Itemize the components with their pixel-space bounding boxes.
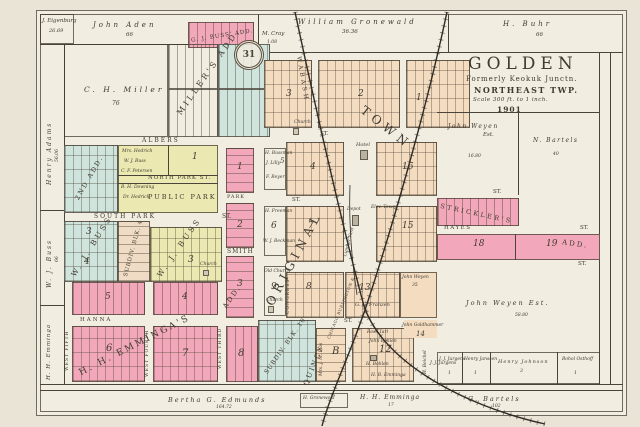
- map-title: GOLDEN: [468, 56, 578, 73]
- town-block6-number: 6: [271, 222, 277, 231]
- emminga-block8-number: 8: [238, 349, 244, 359]
- janssen-parcel-acres: 1: [474, 372, 477, 377]
- g-bartels-acres: 102: [492, 405, 501, 410]
- jurgens-parcel-acres: 1: [448, 372, 451, 377]
- park-street-label: PARK: [227, 195, 245, 200]
- weyen-lower-acres: 58.80: [515, 314, 528, 319]
- adams-label: Henry Adams: [47, 122, 53, 185]
- mcray-acres: 1.08: [267, 41, 277, 46]
- franzen-label: G. G. Franzen: [355, 303, 390, 308]
- hotel-label: Hotel: [356, 143, 370, 148]
- pink-block2-number: 2: [237, 221, 243, 230]
- ross-tarl-label: Ross Tarl: [367, 331, 388, 336]
- hayes-street-label: HAYES: [444, 226, 471, 232]
- stricklers-south-st: ST.: [578, 262, 586, 268]
- north-park-street-label: NORTH PARK ST.: [148, 176, 211, 182]
- west-fifth-street-label: WEST FIFTH: [66, 331, 71, 371]
- town-block14-number: 14: [416, 331, 425, 338]
- dr-hedrick-owner: Dr. Hedrick: [123, 196, 149, 201]
- church-label: Church: [294, 121, 311, 126]
- town-block7-number: 7: [308, 222, 314, 231]
- weyen35-acres: 35: [412, 284, 418, 289]
- beichel-label: H. Beichel: [424, 350, 429, 374]
- weyen-upper-label: John Weyen: [448, 124, 499, 130]
- town-street-st-3: ST.: [344, 319, 352, 325]
- buhr-label: H. Buhr: [503, 21, 552, 28]
- map-title-township: NORTHEAST TWP.: [474, 86, 579, 94]
- town-block1-number: 1: [416, 94, 422, 103]
- town-street-st-2: ST.: [292, 198, 300, 204]
- church2-label: Church: [266, 299, 283, 304]
- downing-owner: B. H. Downing: [121, 186, 154, 191]
- yellow-block3-number: 3: [188, 256, 194, 265]
- albers-street-label: ALBERS: [142, 138, 180, 144]
- hanna-street-label: HANNA: [80, 318, 112, 324]
- gronewold-label: H. Gronewold: [303, 397, 335, 402]
- buhr-acres: 66: [536, 33, 543, 39]
- town-block8-number: 8: [306, 283, 312, 292]
- section-stamp-number: 31: [243, 50, 256, 60]
- beyer-owner: F. Beyer: [266, 176, 285, 181]
- hh-emminga-strip-acres: 17: [388, 404, 394, 409]
- janssen-parcel-label: Henry Janssen: [464, 358, 497, 363]
- mcray-label: M. Cray: [262, 32, 284, 38]
- n-bartels-acres: 40: [553, 153, 559, 158]
- south-park-st-suffix: ST.: [222, 214, 231, 220]
- stricklers-block18-number: 18: [473, 240, 484, 249]
- pink-block1-number: 1: [237, 163, 243, 172]
- ch-miller-label: C. H. Miller: [84, 86, 164, 94]
- jurgens-parcel-label: J. J. Jurgens: [439, 358, 465, 363]
- public-park-label: PUBLIC PARK: [148, 194, 217, 201]
- h-bohlen-label: H. Bohlen: [366, 363, 389, 368]
- lilly-owner: J. Lilly: [266, 162, 280, 167]
- map-title-formerly: Formerly Keokuk Junctn.: [466, 76, 577, 83]
- bussman-owner: H. Bussman: [265, 152, 292, 157]
- smith-street-label: SMITH: [227, 249, 254, 255]
- johnson-parcel-acres: 3: [520, 370, 523, 375]
- gronewald-label: William Gronewald: [298, 19, 417, 26]
- town-block3-number: 3: [286, 90, 292, 99]
- eigenburg-acres: 26.69: [49, 29, 63, 34]
- aden-label: John Aden: [93, 22, 156, 29]
- stricklers-st-label: ST.: [493, 190, 501, 196]
- eigenburg-label: J. Eigenburg: [42, 19, 77, 25]
- n-bartels-label: N. Bartels: [533, 138, 579, 144]
- elev-tower-label: Elev. Tower: [371, 206, 397, 211]
- gronewald-acres: 36.36: [342, 30, 358, 36]
- aden-acres: 66: [126, 33, 133, 39]
- weyen-upper-acres: 16.80: [468, 155, 481, 160]
- hayes-st-suffix: ST.: [580, 226, 588, 232]
- town-block16-number: 16: [402, 163, 413, 172]
- bohlen-label: John Bohlen: [369, 340, 397, 345]
- yellow-church-label: Church: [200, 263, 217, 268]
- plat-map-golden: 31 GOLDEN Formerly Keokuk Junctn. NORTHE…: [0, 0, 640, 427]
- yellow-block1-number: 1: [192, 153, 198, 162]
- congress-street-label: CONGRESS: [287, 279, 292, 314]
- section-stamp: 31: [234, 40, 264, 70]
- map-title-scale: Scale 300 ft. to 1 inch.: [473, 98, 548, 104]
- margin-wj-buss-acres: 66: [56, 256, 61, 262]
- hb-emminga-label: H. B. Emminga: [371, 374, 406, 379]
- map-title-year: 1901: [497, 106, 522, 114]
- johnson-parcel-label: Henry Johnson: [498, 360, 549, 365]
- hh-emminga-strip-label: H. H. Emminga: [360, 395, 420, 401]
- town-street-st-1: ST.: [320, 132, 328, 138]
- ch-miller-acres: 76: [112, 101, 120, 107]
- stricklers-block19-number: 19: [546, 240, 557, 249]
- hedrich-owner: Mrs. Hedrich: [122, 150, 152, 155]
- beckman-owner: W. J. Beckman: [263, 240, 295, 245]
- town-block4-number: 4: [310, 163, 316, 172]
- town-blockB-letter: B: [332, 347, 339, 357]
- emminga-block4-number: 4: [182, 293, 188, 302]
- adams-acres: 56.06: [56, 149, 61, 162]
- emminga-block5-number: 5: [105, 293, 111, 302]
- margin-wj-buss-label: W. J. Buss: [47, 239, 53, 288]
- goldhammer-label: John Goldhammer: [402, 324, 443, 329]
- weyen35-label: John Weyen: [402, 276, 429, 281]
- emminga-block7-number: 7: [182, 349, 188, 359]
- west-third-street-label: WEST THIRD: [219, 328, 224, 369]
- depot-label: Depot: [347, 208, 361, 213]
- town-block12-number: 12: [379, 345, 392, 355]
- west-fourth-street-label: WEST FOURTH: [146, 330, 151, 377]
- weyen-upper-est: Est.: [483, 133, 494, 139]
- town-block9-number: 9: [271, 283, 277, 292]
- town-block5-number: 5: [280, 158, 284, 165]
- petersen-owner: C. F. Petersen: [121, 170, 152, 175]
- g-bartels-label: G. Bartels: [468, 396, 521, 403]
- edmunds-label: Bertha G. Edmunds: [168, 397, 267, 404]
- town-jurgens-label: J. J. Jurgens: [430, 362, 456, 367]
- town-block2-number: 2: [358, 90, 364, 99]
- weyen-lower-label: John Weyen Est.: [466, 300, 550, 307]
- osthoff-parcel-label: Bohol Osthoff: [562, 358, 593, 363]
- old-church-label: Old Church: [264, 270, 290, 275]
- town-block15-number: 15: [402, 222, 413, 231]
- edmunds-acres: 164.72: [216, 406, 232, 411]
- margin-hh-emminga-label: H. H. Emminga: [47, 324, 53, 380]
- osthoff-parcel-acres: 1: [574, 372, 577, 377]
- freeman-owner: H. Freeman: [265, 210, 292, 215]
- wj-buss-owner: W. J. Buss: [124, 160, 146, 165]
- town-block13-number: 13: [359, 284, 370, 293]
- wjbuss-block3-number: 3: [86, 228, 92, 237]
